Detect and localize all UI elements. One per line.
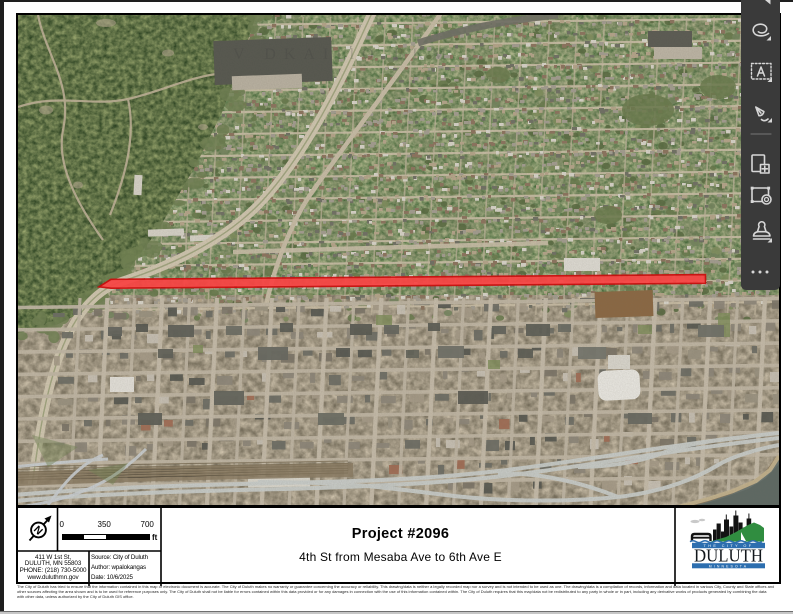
svg-text:DULUTH: DULUTH [694,545,763,565]
svg-text:MINNESOTA: MINNESOTA [709,564,748,568]
